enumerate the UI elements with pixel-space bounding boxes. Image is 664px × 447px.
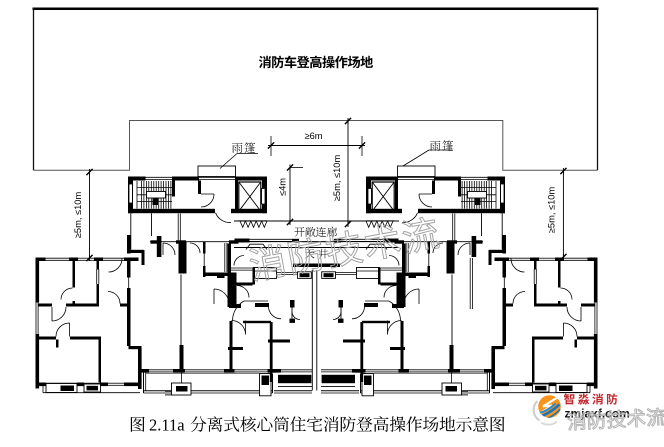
svg-text:≥5m, ≤10m: ≥5m, ≤10m: [332, 155, 342, 202]
svg-text:≤4m: ≤4m: [278, 178, 288, 196]
svg-text:≥5m, ≤10m: ≥5m, ≤10m: [73, 192, 83, 239]
svg-text:≥6m: ≥6m: [304, 131, 322, 141]
svg-text:≥5m, ≤10m: ≥5m, ≤10m: [547, 187, 557, 234]
svg-text:2.11a: 2.11a: [149, 416, 185, 435]
